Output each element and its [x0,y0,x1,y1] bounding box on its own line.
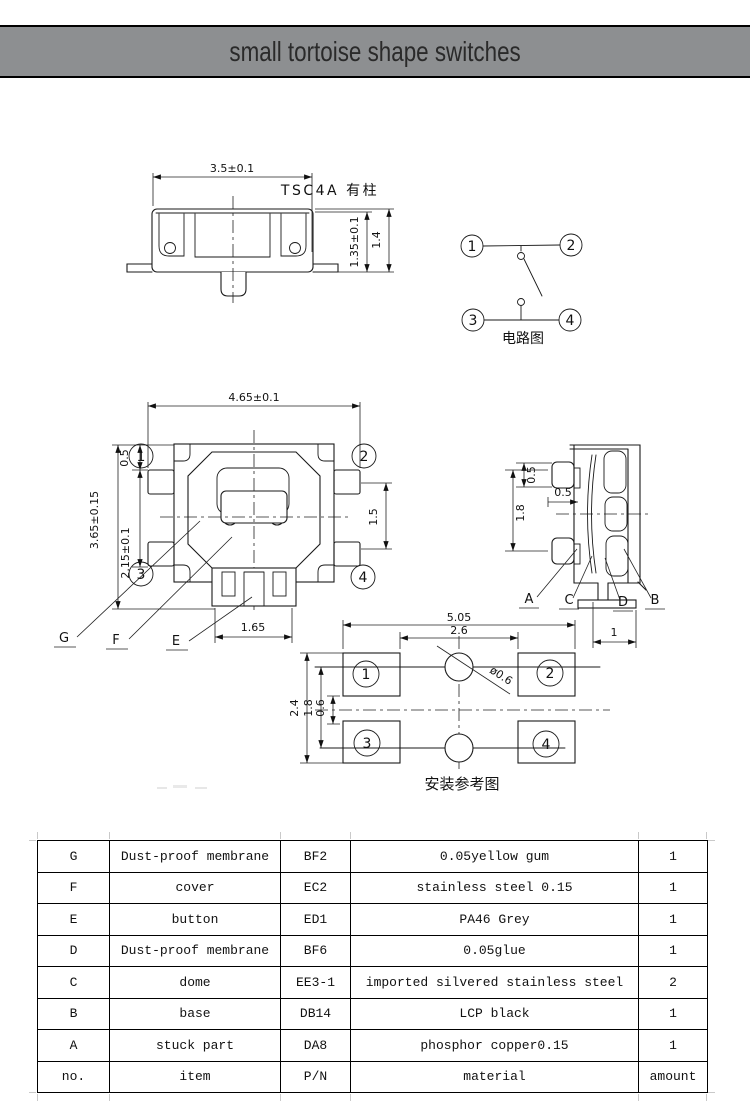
circuit-diagram: 1 2 3 4 电路图 [461,234,582,347]
tv-stem-dim: 1.65 [241,621,266,634]
table-row: F cover EC2 stainless steel 0.15 1 [38,872,708,904]
table-cell: D [38,935,110,967]
grid-ticks-bottom [37,1094,707,1101]
table-cell: dome [110,967,281,999]
table-cell: DB14 [281,998,351,1030]
pad-1-label: 1 [362,667,371,683]
mt-gap-dim: 0.6 [314,699,327,717]
table-row: C dome EE3-1 imported silvered stainless… [38,967,708,999]
table-cell: stainless steel 0.15 [351,872,639,904]
mt-outer-height-dim: 2.4 [288,699,301,717]
table-cell: B [38,998,110,1030]
tv-terminal-4: 4 [359,570,368,586]
table-cell: Dust-proof membrane [110,935,281,967]
table-header-row: no. item P/N material amount [38,1061,708,1093]
top-view-drawing: 1 2 3 4 4.65±0.1 3.65±0.15 0.5 2.15±0.1 … [54,391,392,650]
part-label-d: D [618,595,628,610]
terminal-2-label: 2 [567,238,576,254]
grid-ticks-right [708,840,715,1093]
table-cell: 1 [639,872,708,904]
table-cell: imported silvered stainless steel [351,967,639,999]
table-cell: EC2 [281,872,351,904]
rv-span-dim: 1.8 [514,504,527,522]
bom-table: G Dust-proof membrane BF2 0.05yellow gum… [37,840,708,1093]
side-height-inner-dim: 1.35±0.1 [348,216,361,267]
table-cell: stuck part [110,1030,281,1062]
mounting-caption: 安装参考图 [424,775,499,793]
tv-pitch-dim: 2.15±0.1 [119,527,132,578]
table-cell: LCP black [351,998,639,1030]
terminal-1-label: 1 [468,239,477,255]
table-cell: material [351,1061,639,1093]
grid-ticks-left [29,840,36,1093]
engineering-drawing-canvas: 3.5±0.1 TSC4A 有柱 1.35±0.1 1.4 1 2 3 4 电路… [0,0,750,840]
pad-2-label: 2 [546,666,555,682]
rv-step-dim: 0.5 [554,486,572,499]
table-cell: C [38,967,110,999]
tv-button-dim: 1.5 [367,508,380,526]
table-cell: base [110,998,281,1030]
table-cell: ED1 [281,904,351,936]
pad-3-label: 3 [363,736,372,752]
tv-height-dim: 3.65±0.15 [88,491,101,549]
terminal-4-label: 4 [566,313,575,329]
table-cell: 0.05glue [351,935,639,967]
grid-ticks-top [37,832,707,839]
table-cell: EE3-1 [281,967,351,999]
mt-inner-width-dim: 2.6 [450,624,468,637]
table-cell: amount [639,1061,708,1093]
rv-tab-dim: 0.5 [525,466,538,484]
table-cell: 1 [639,841,708,873]
table-cell: G [38,841,110,873]
table-cell: PA46 Grey [351,904,639,936]
part-label-a: A [525,592,534,607]
table-row: B base DB14 LCP black 1 [38,998,708,1030]
table-cell: 1 [639,904,708,936]
faint-watermark [155,784,213,791]
side-width-dim: 3.5±0.1 [210,162,254,175]
table-cell: button [110,904,281,936]
table-cell: P/N [281,1061,351,1093]
table-row: A stuck part DA8 phosphor copper0.15 1 [38,1030,708,1062]
part-label-e: E [172,634,180,649]
table-cell: A [38,1030,110,1062]
table-row: E button ED1 PA46 Grey 1 [38,904,708,936]
table-cell: DA8 [281,1030,351,1062]
side-view-drawing: 3.5±0.1 TSC4A 有柱 1.35±0.1 1.4 [127,162,394,303]
tv-terminal-2: 2 [360,449,369,465]
part-label-g: G [59,631,69,646]
part-label-f: F [112,633,119,648]
table-cell: E [38,904,110,936]
part-label-b: B [651,593,660,608]
table-cell: 0.05yellow gum [351,841,639,873]
side-height-total-dim: 1.4 [370,231,383,249]
mounting-diagram: ø0.6 1 2 3 4 5.05 2.6 2.4 1.8 0.6 安装参考图 [288,611,610,793]
table-cell: phosphor copper0.15 [351,1030,639,1062]
table-cell: cover [110,872,281,904]
tv-offset-dim: 0.5 [118,449,131,467]
table-cell: 1 [639,935,708,967]
table-cell: BF2 [281,841,351,873]
table-cell: no. [38,1061,110,1093]
tv-terminal-3: 3 [137,567,146,583]
table-row: G Dust-proof membrane BF2 0.05yellow gum… [38,841,708,873]
pad-4-label: 4 [542,737,551,753]
part-label-c: C [564,593,573,608]
mt-outer-width-dim: 5.05 [447,611,472,624]
table-cell: 2 [639,967,708,999]
bom-table-wrap: G Dust-proof membrane BF2 0.05yellow gum… [37,840,707,1093]
table-cell: item [110,1061,281,1093]
table-cell: Dust-proof membrane [110,841,281,873]
table-row: D Dust-proof membrane BF6 0.05glue 1 [38,935,708,967]
rv-foot-dim: 1 [611,626,618,639]
tv-terminal-1: 1 [137,449,146,465]
circuit-caption: 电路图 [502,331,544,347]
right-side-view-drawing: 0.5 1.8 0.5 1 A C D B [505,445,665,648]
terminal-3-label: 3 [469,313,478,329]
model-label: TSC4A 有柱 [280,183,379,199]
table-cell: 1 [639,998,708,1030]
table-cell: F [38,872,110,904]
table-cell: 1 [639,1030,708,1062]
table-cell: BF6 [281,935,351,967]
tv-width-dim: 4.65±0.1 [228,391,279,404]
